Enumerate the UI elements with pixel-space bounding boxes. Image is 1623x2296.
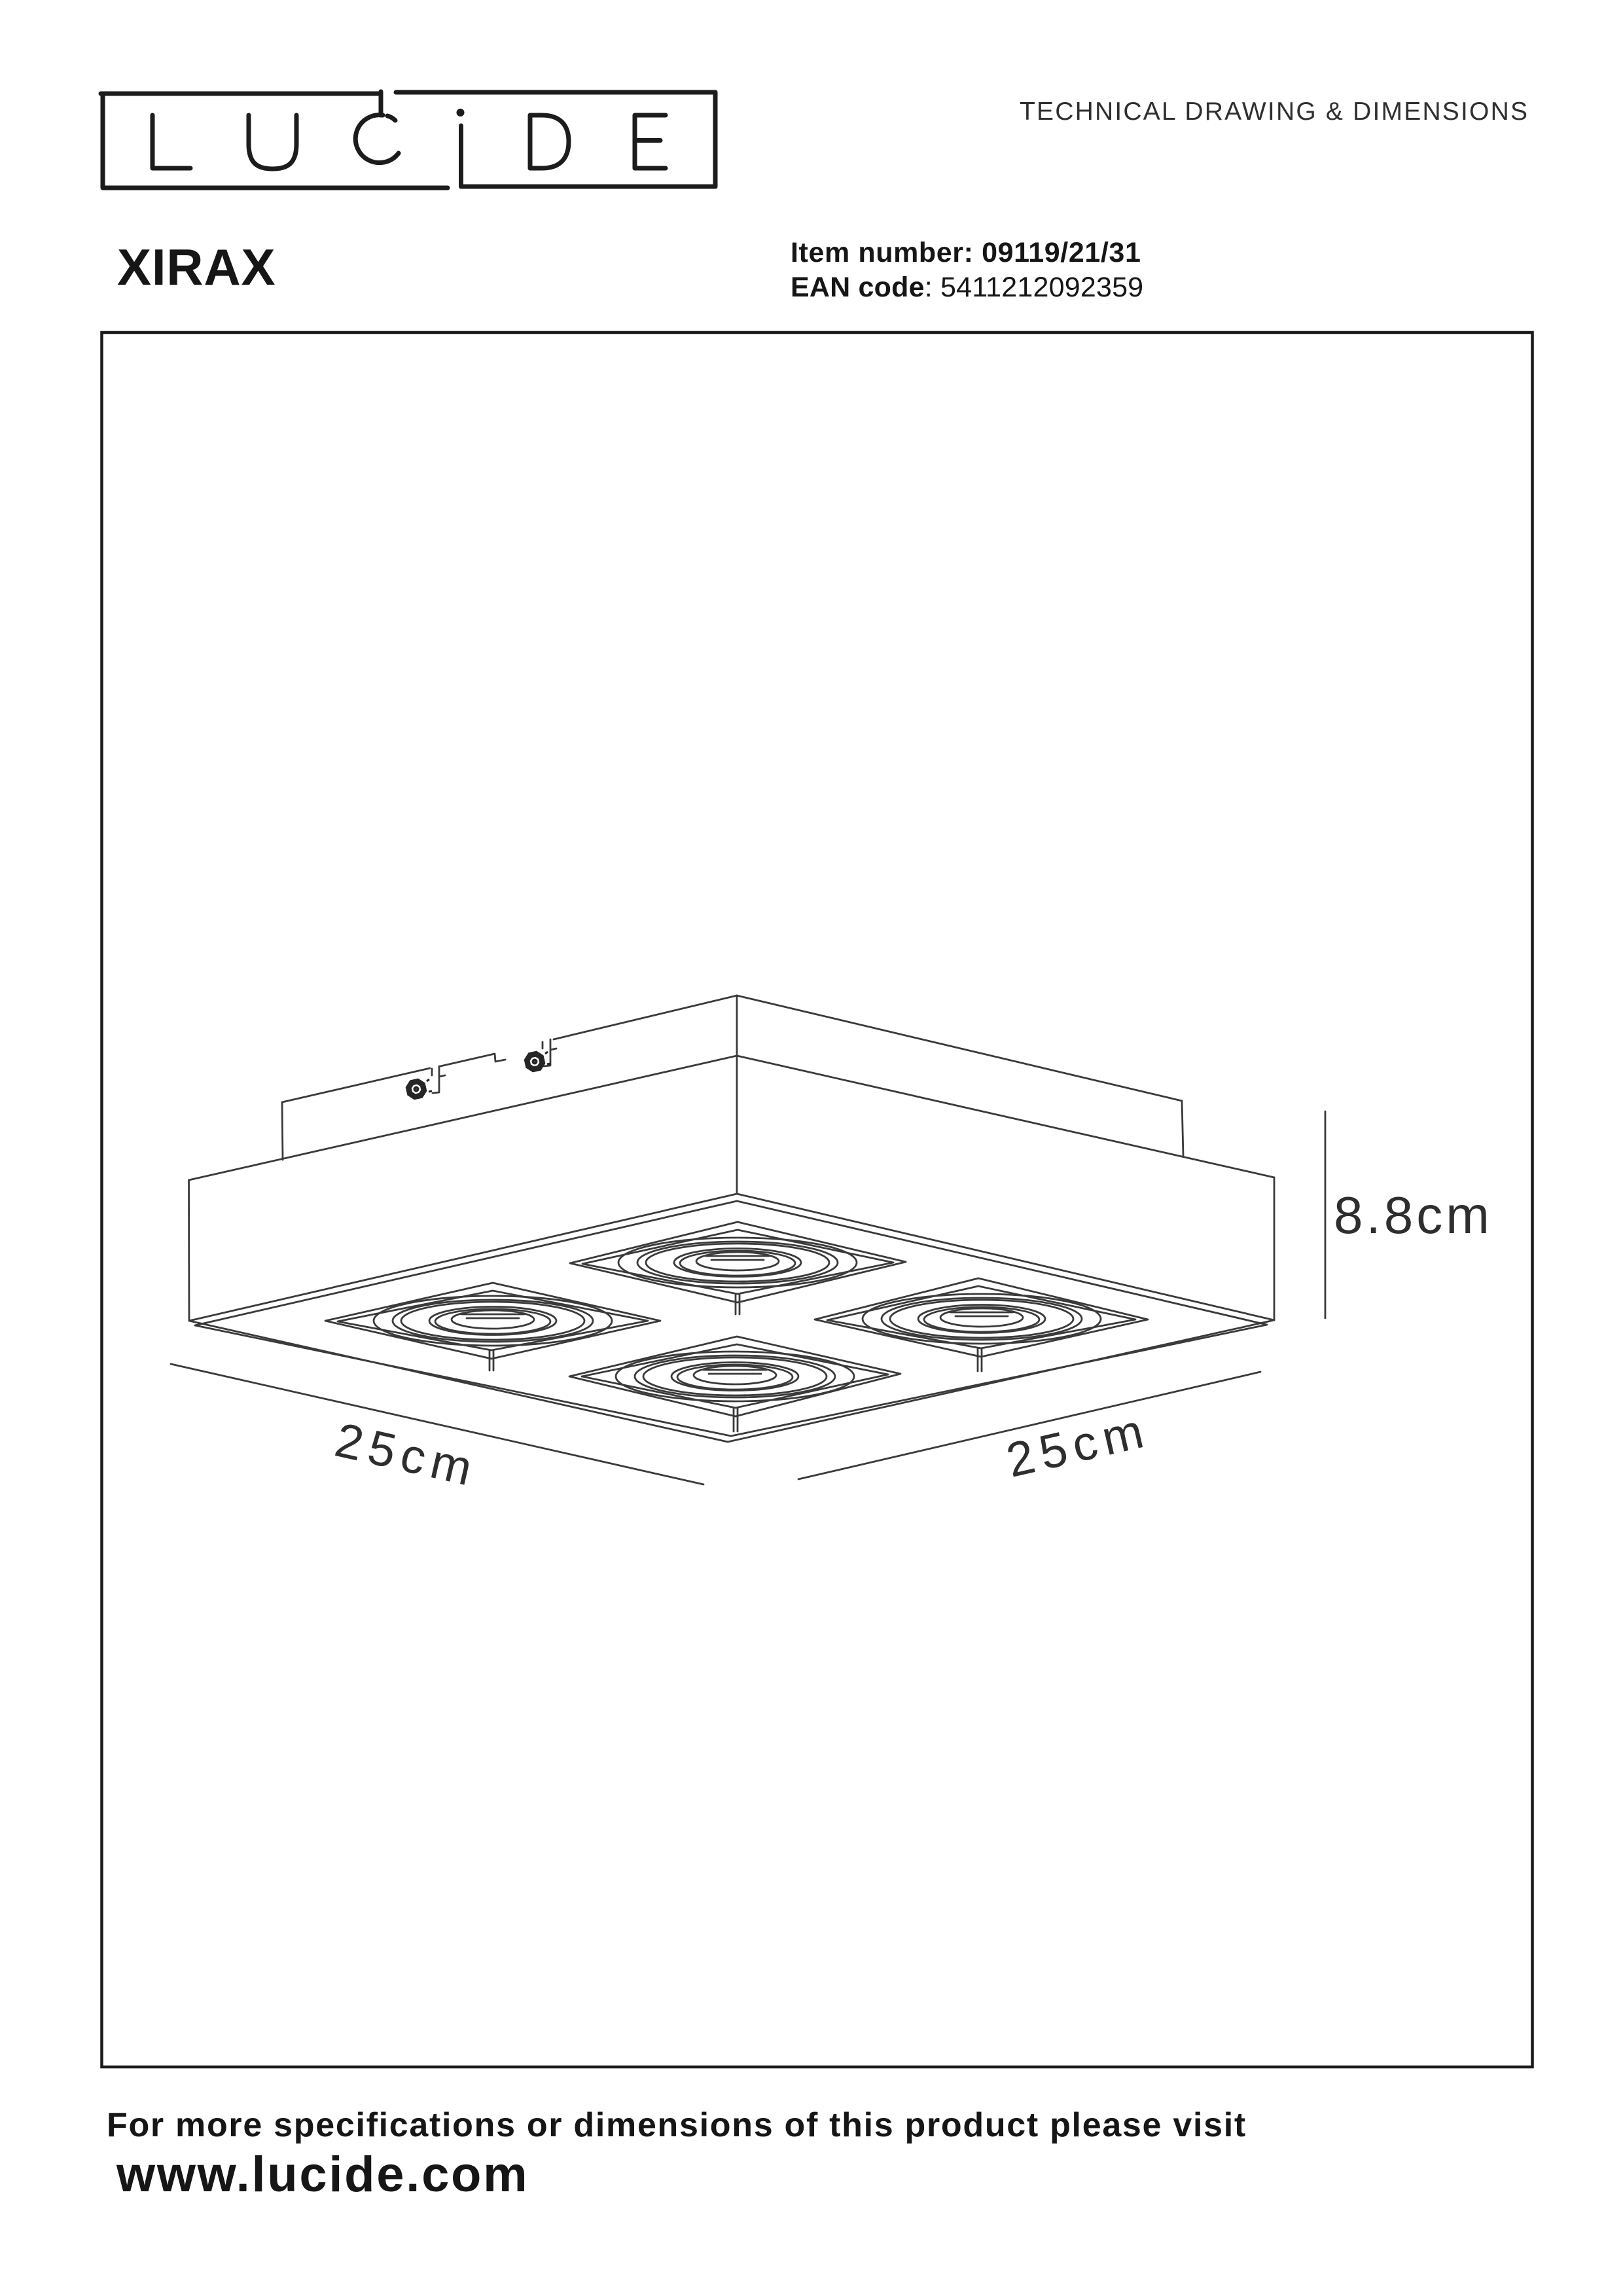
- svg-text:25cm: 25cm: [330, 1412, 484, 1498]
- svg-text:TECHNICAL DRAWING & DIMENSIONS: TECHNICAL DRAWING & DIMENSIONS: [1020, 98, 1529, 126]
- svg-text:EAN code: 5411212092359: EAN code: 5411212092359: [791, 272, 1143, 303]
- svg-text:Item number: 09119/21/31: Item number: 09119/21/31: [791, 237, 1141, 268]
- svg-text:8.8cm: 8.8cm: [1334, 1186, 1493, 1244]
- svg-text:www.lucide.com: www.lucide.com: [116, 2147, 529, 2202]
- svg-text:XIRAX: XIRAX: [117, 238, 276, 296]
- svg-text:For more specifications or dim: For more specifications or dimensions of…: [107, 2106, 1247, 2144]
